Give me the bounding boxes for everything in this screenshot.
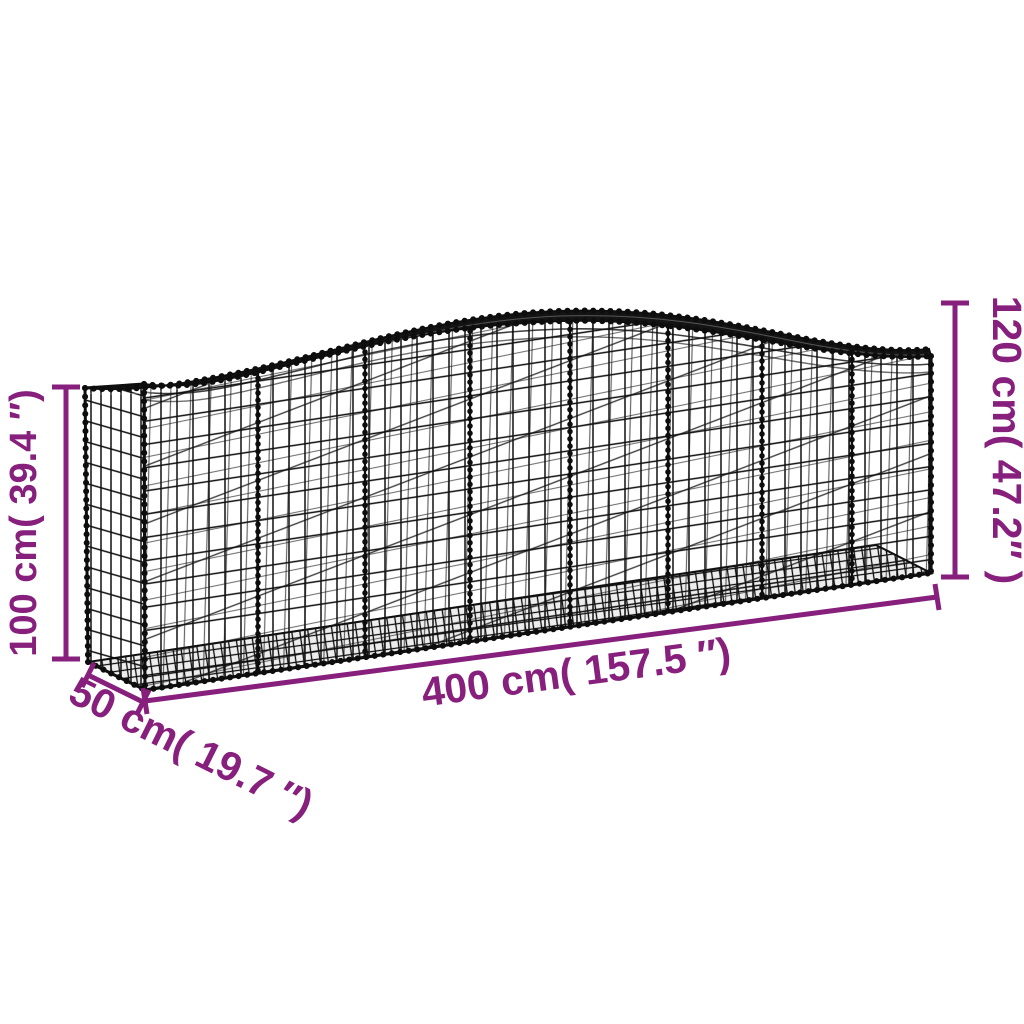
dimension-line-height-right: [941, 303, 969, 577]
gabion-diagram-canvas: 100 cm( 39.4 ″) 120 cm( 47.2″ ) 400 cm( …: [0, 0, 1024, 1024]
dimension-line-height-left: [52, 387, 80, 659]
gabion-basket-illustration: [85, 311, 931, 690]
dimension-label-height-right: 120 cm( 47.2″ ): [984, 296, 1024, 585]
dimension-height-left: [52, 387, 80, 659]
product-diagram-stage: 100 cm( 39.4 ″) 120 cm( 47.2″ ) 400 cm( …: [0, 0, 1024, 1024]
dimension-label-depth: 50 cm( 19.7 ″): [62, 668, 320, 828]
basket-front-panel: [144, 321, 931, 690]
dimension-label-height-left: 100 cm( 39.4 ″): [3, 389, 45, 656]
basket-side-panel: [85, 384, 145, 690]
dimension-height-right: [941, 303, 969, 577]
